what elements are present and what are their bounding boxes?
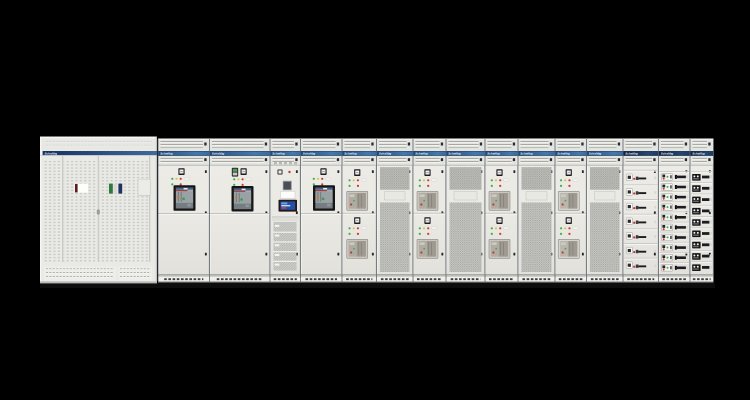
svg-text:Schaltbg: Schaltbg — [692, 152, 705, 156]
svg-text:Schaltbg: Schaltbg — [625, 152, 638, 156]
svg-text:Schaltbg: Schaltbg — [160, 152, 173, 156]
svg-text:Schaltbg: Schaltbg — [272, 152, 285, 156]
svg-text:Schaltbg: Schaltbg — [661, 152, 674, 156]
svg-text:Schaltbg: Schaltbg — [589, 152, 602, 156]
svg-text:Schaltbg: Schaltbg — [379, 152, 392, 156]
svg-text:Schaltbg: Schaltbg — [344, 152, 357, 156]
svg-text:Schaltbg: Schaltbg — [557, 152, 570, 156]
svg-text:Schaltbg: Schaltbg — [212, 152, 225, 156]
svg-text:Schaltbg: Schaltbg — [448, 152, 461, 156]
svg-text:Schaltbg: Schaltbg — [487, 152, 500, 156]
svg-text:Schaltbg: Schaltbg — [415, 152, 428, 156]
svg-text:Schaltbg: Schaltbg — [45, 151, 58, 155]
svg-text:Schaltbg: Schaltbg — [303, 152, 316, 156]
svg-text:Schaltbg: Schaltbg — [520, 152, 533, 156]
